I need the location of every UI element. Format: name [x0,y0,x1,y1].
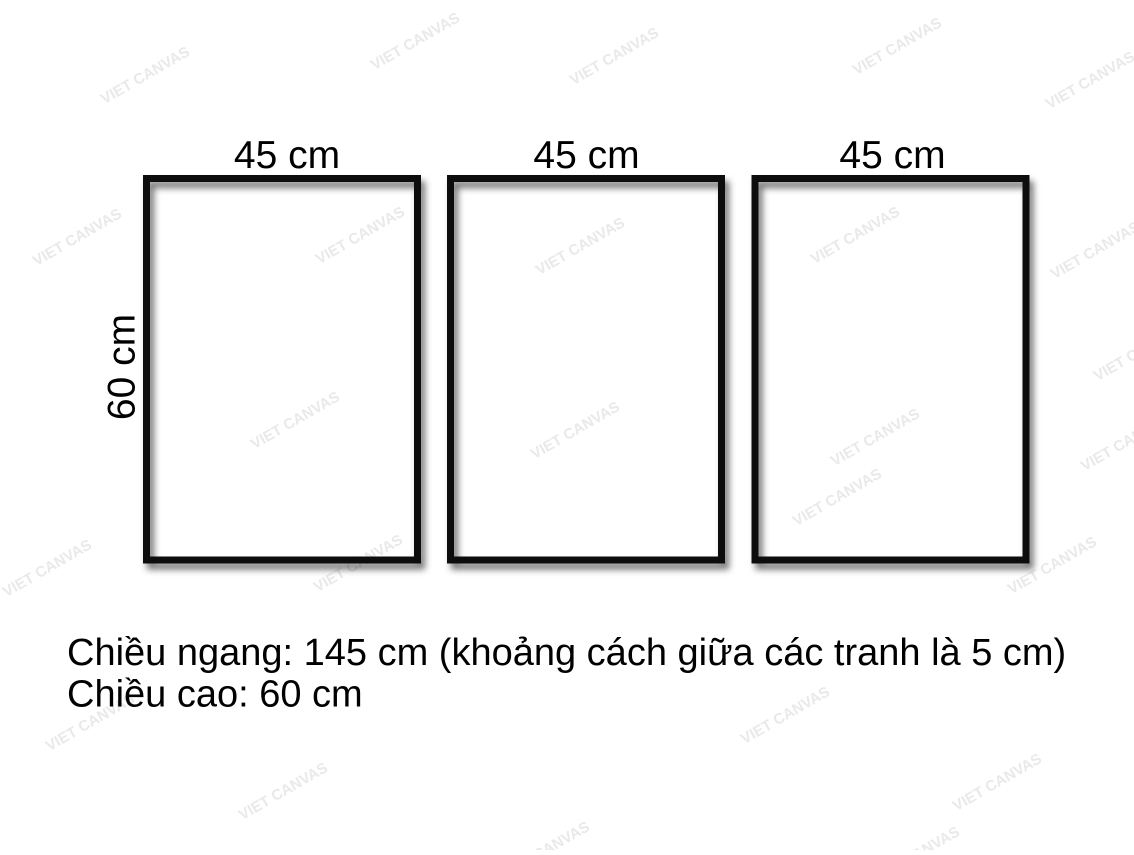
svg-text:Chiều cao: 60 cm: Chiều cao: 60 cm [67,674,363,716]
svg-text:45 cm: 45 cm [839,134,945,177]
svg-text:45 cm: 45 cm [533,134,639,177]
svg-text:45 cm: 45 cm [234,134,340,177]
svg-text:Chiều ngang: 145 cm (khoảng cá: Chiều ngang: 145 cm (khoảng cách giữa cá… [67,632,1066,674]
svg-text:60 cm: 60 cm [101,314,144,420]
